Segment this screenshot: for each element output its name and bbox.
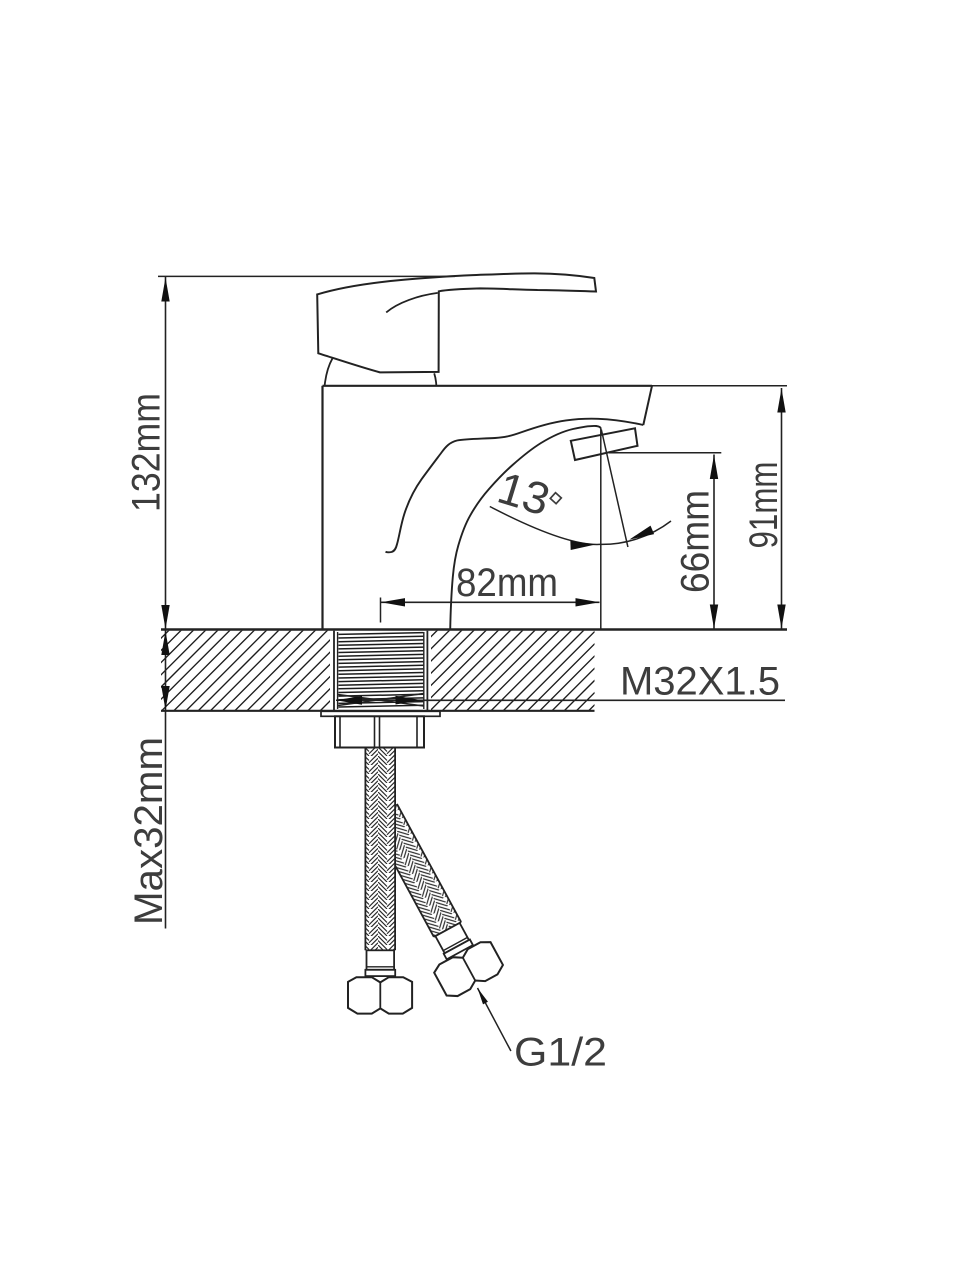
svg-text:G1/2: G1/2 [514,1031,607,1075]
svg-text:M32X1.5: M32X1.5 [620,660,780,704]
svg-text:82mm: 82mm [456,561,558,605]
svg-text:Max32mm: Max32mm [127,737,171,925]
svg-text:66mm: 66mm [674,490,718,593]
svg-text:91mm: 91mm [742,462,786,549]
svg-text:132mm: 132mm [125,393,169,512]
